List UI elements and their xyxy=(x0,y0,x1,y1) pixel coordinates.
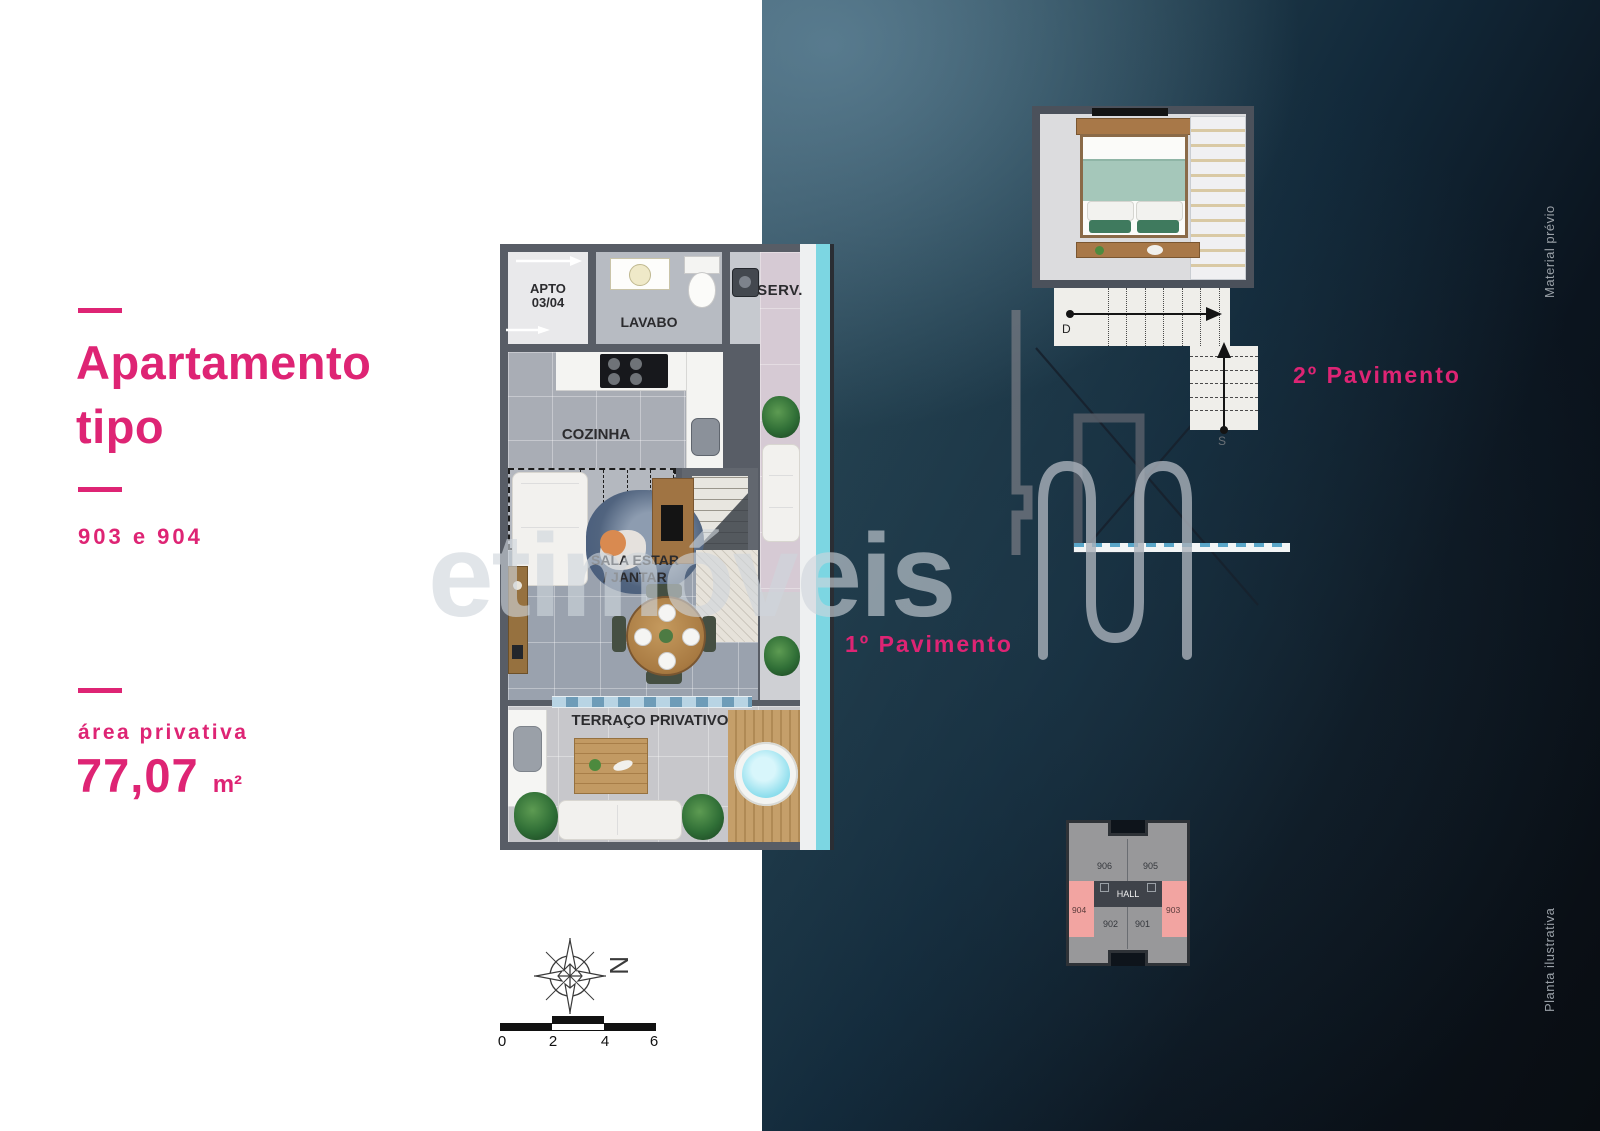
plant-balcony-upper xyxy=(762,396,800,438)
scale-tick-4: 4 xyxy=(601,1033,609,1050)
floorplan-2nd-floor: SUITE D xyxy=(1032,106,1260,452)
private-area-value: 77,07 m² xyxy=(76,748,242,803)
keyplan-bottom-notch xyxy=(1108,950,1148,966)
hot-tub xyxy=(734,742,798,806)
caption-2-pavimento: 2º Pavimento xyxy=(1293,362,1461,389)
lavabo-floor: LAVABO xyxy=(596,252,722,344)
suite-foot-bench xyxy=(1076,242,1200,258)
dining-table xyxy=(626,596,706,676)
terrace-glass-door xyxy=(552,696,752,708)
stair-flight xyxy=(1190,346,1258,430)
plan-cyan-edge xyxy=(816,244,830,850)
keyplan-unit-905: 905 xyxy=(1143,861,1158,871)
plan-dark-edge xyxy=(830,244,834,850)
scale-bar: 0 2 4 6 xyxy=(500,1016,656,1052)
terrace-sofa xyxy=(558,800,682,840)
sideboard xyxy=(508,566,528,674)
stair-landing: D xyxy=(1054,288,1230,346)
apto-label-line2: 03/04 xyxy=(508,296,588,310)
stair-up-label: S xyxy=(1218,434,1226,448)
scale-tick-6: 6 xyxy=(650,1033,658,1050)
floorplan-1st-floor: APTO 03/04 LAVABO SERV. xyxy=(500,244,834,850)
keyplan-unit-904-highlight: 904 xyxy=(1069,881,1094,937)
dining-chair-w xyxy=(612,616,626,652)
keyplan-building-footprint: 906 905 904 903 HALL 902 901 xyxy=(1066,820,1190,966)
ascend-arrow xyxy=(1190,342,1258,438)
page-title-line2: tipo xyxy=(76,400,164,454)
sala-label-line1: SALA ESTAR xyxy=(550,552,720,568)
plan-white-edge xyxy=(800,244,816,850)
kitchen-counter-side xyxy=(686,352,723,468)
brochure-page: Apartamento tipo 903 e 904 área privativ… xyxy=(0,0,1600,1131)
suite-headboard-shelf xyxy=(1076,118,1200,135)
accent-dash-top xyxy=(78,308,122,313)
keyplan-unit-901: 901 xyxy=(1135,919,1150,929)
plant-balcony-lower xyxy=(764,636,800,676)
keyplan-hall: HALL xyxy=(1094,881,1162,907)
caption-1-pavimento: 1º Pavimento xyxy=(845,631,1013,658)
accent-dash-bottom xyxy=(78,688,122,693)
cozinha-floor: COZINHA xyxy=(508,352,722,468)
keyplan-unit-906: 906 xyxy=(1097,861,1112,871)
keyplan-unit-904: 904 xyxy=(1072,905,1086,915)
suite-bed xyxy=(1080,134,1188,238)
suite-tv xyxy=(1092,108,1168,116)
sala-label-line2: / JANTAR xyxy=(550,569,720,585)
scale-tick-0: 0 xyxy=(498,1033,506,1050)
suite-walls: SUITE xyxy=(1032,106,1254,288)
terrace-table xyxy=(574,738,648,794)
netimoveis-n-logo xyxy=(1015,450,1205,665)
keyplan-unit-903: 903 xyxy=(1166,905,1180,915)
lavabo-sink xyxy=(610,258,670,290)
compass-rose: N xyxy=(515,928,655,1018)
terraco-label: TERRAÇO PRIVATIVO xyxy=(530,712,770,729)
keyplan-hall-label: HALL xyxy=(1094,889,1162,899)
cozinha-label: COZINHA xyxy=(508,426,684,443)
apto-label-line1: APTO xyxy=(508,282,588,296)
terrace-basin xyxy=(513,726,542,772)
keyplan-unit-903-highlight: 903 xyxy=(1162,881,1187,937)
cooktop xyxy=(600,354,668,388)
plant-terrace-right xyxy=(682,794,724,840)
descend-arrow xyxy=(1054,288,1230,346)
keyplan-unit-902: 902 xyxy=(1103,919,1118,929)
entry-door-arrow xyxy=(514,254,584,268)
kitchen-sink xyxy=(691,418,720,456)
serv-label: SERV. xyxy=(738,282,822,299)
side-note-material-previo: Material prévio xyxy=(1542,138,1557,298)
area-number: 77,07 xyxy=(76,749,199,802)
toilet-bowl xyxy=(688,272,716,308)
stair-down-label: D xyxy=(1062,322,1071,336)
unit-numbers: 903 e 904 xyxy=(78,524,203,550)
area-unit: m² xyxy=(213,771,242,798)
side-note-planta-ilustrativa: Planta ilustrativa xyxy=(1542,822,1557,1012)
scale-tick-2: 2 xyxy=(549,1033,557,1050)
lounge-chair xyxy=(762,444,800,542)
north-letter: N xyxy=(604,956,634,975)
private-area-label: área privativa xyxy=(78,721,248,745)
lavabo-door-arrow xyxy=(504,324,552,336)
lavabo-label: LAVABO xyxy=(596,314,702,330)
page-title-line1: Apartamento xyxy=(76,336,371,390)
keyplan-top-notch xyxy=(1108,820,1148,836)
accent-dash-mid xyxy=(78,487,122,492)
plant-terrace-left xyxy=(514,792,558,840)
